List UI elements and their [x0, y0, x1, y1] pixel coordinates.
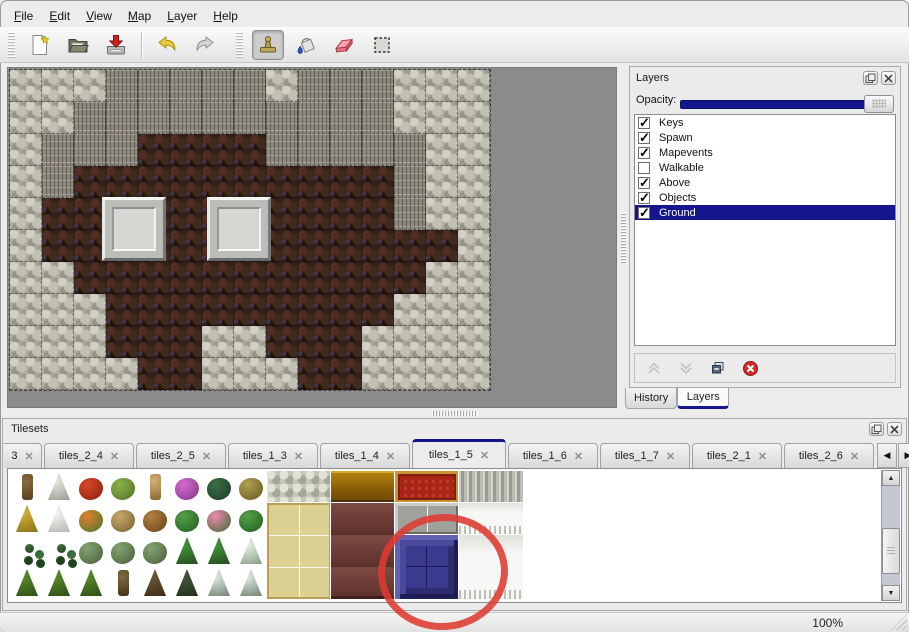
map-tile-light-rock[interactable] [458, 102, 490, 134]
specks-icon [25, 544, 34, 553]
map-tile-cliff[interactable] [394, 166, 426, 198]
map-tile-cave-floor[interactable] [362, 166, 394, 198]
palette-tile-stump[interactable] [107, 471, 139, 503]
map-tile-cave-floor[interactable] [106, 166, 138, 198]
map-tile-cave-floor[interactable] [298, 230, 330, 262]
tab-close-icon[interactable]: ✕ [850, 450, 859, 463]
palette-tile-dryplant[interactable] [235, 471, 267, 503]
map-tile-cave-floor[interactable] [266, 294, 298, 326]
palette-tile-whitecurtain[interactable] [459, 535, 523, 599]
map-tile-cave-floor[interactable] [394, 262, 426, 294]
map-tile-light-rock[interactable] [10, 326, 42, 358]
map-tile-cave-floor[interactable] [74, 166, 106, 198]
tileset-tab-tiles_1_5[interactable]: tiles_1_5✕ [412, 439, 506, 468]
palette-tile-whitecurtain[interactable] [459, 503, 523, 535]
chevron-down-icon [678, 360, 694, 376]
delete-layer-button[interactable] [737, 356, 763, 380]
palette-tile-orangeflower[interactable] [75, 503, 107, 535]
tileset-tab-tiles_2_1[interactable]: tiles_2_1✕ [692, 443, 782, 468]
arrow-down-icon: ▼ [888, 590, 895, 597]
palette-tile-specks[interactable] [11, 535, 43, 567]
palette-tile-conifer[interactable] [11, 567, 43, 599]
map-tile-light-rock[interactable] [362, 358, 394, 390]
map-tile-cliff[interactable] [330, 102, 362, 134]
undo-button[interactable] [151, 30, 183, 60]
layer-row-above[interactable]: ✓Above [635, 175, 895, 190]
map-tile-light-rock[interactable] [426, 102, 458, 134]
map-tile-cave-floor[interactable] [138, 134, 170, 166]
tilesets-panel-title: Tilesets [11, 423, 49, 435]
map-tile-light-rock[interactable] [106, 358, 138, 390]
map-tile-cave-floor[interactable] [234, 262, 266, 294]
palette-tile-wood[interactable] [331, 471, 395, 503]
palette-tile-snowpine[interactable] [203, 567, 235, 599]
map-tile-light-rock[interactable] [10, 166, 42, 198]
map-tile-cliff[interactable] [394, 198, 426, 230]
tab-close-icon[interactable]: ✕ [294, 450, 303, 463]
map-tile-cave-floor[interactable] [298, 166, 330, 198]
map-tile-light-rock[interactable] [42, 358, 74, 390]
redo-icon [193, 33, 217, 57]
map-tile-cave-floor[interactable] [138, 358, 170, 390]
palette-tile-silvercurtain[interactable] [459, 471, 523, 503]
map-tile-light-rock[interactable] [202, 358, 234, 390]
map-tile-cave-floor[interactable] [330, 326, 362, 358]
layer-name: Ground [659, 207, 696, 219]
map-tile-cave-floor[interactable] [170, 358, 202, 390]
tab-history[interactable]: History [625, 388, 677, 409]
map-tile-cave-floor[interactable] [170, 166, 202, 198]
map-tile-light-rock[interactable] [74, 294, 106, 326]
map-tile-cave-floor[interactable] [106, 294, 138, 326]
map-tile-cave-floor[interactable] [330, 166, 362, 198]
map-tile-cave-floor[interactable] [202, 294, 234, 326]
toolbar-handle-2[interactable] [236, 32, 243, 58]
scroll-tabs-right-button[interactable]: ▶ [898, 443, 909, 468]
map-tile-cliff[interactable] [202, 70, 234, 102]
map-tile-cave-floor[interactable] [170, 230, 202, 262]
menu-view[interactable]: View [80, 7, 122, 25]
map-tile-light-rock[interactable] [42, 70, 74, 102]
save-file-button[interactable] [100, 30, 132, 60]
map-tile-light-rock[interactable] [266, 70, 298, 102]
tab-label: tiles_2_6 [799, 450, 843, 462]
snowmound-icon [47, 505, 71, 532]
palette-tile-grayblocks[interactable] [395, 503, 459, 535]
map-tile-light-rock[interactable] [426, 294, 458, 326]
map-tile-light-rock[interactable] [202, 326, 234, 358]
map-tile-light-rock[interactable] [42, 102, 74, 134]
menu-file[interactable]: File [8, 7, 43, 25]
map-tile-light-rock[interactable] [42, 262, 74, 294]
map-tile-cave-floor[interactable] [106, 326, 138, 358]
new-file-button[interactable] [24, 30, 56, 60]
tileset-tab-tiles_2_6[interactable]: tiles_2_6✕ [784, 443, 874, 468]
layer-row-objects[interactable]: ✓Objects [635, 190, 895, 205]
layer-name: Objects [659, 192, 696, 204]
map-tile-light-rock[interactable] [458, 294, 490, 326]
close-panel-button[interactable] [887, 422, 902, 436]
palette-tile-bluebutton[interactable] [395, 535, 459, 599]
map-tile-cave-floor[interactable] [234, 166, 266, 198]
palette-tile-maroon[interactable] [331, 503, 395, 599]
palette-tile-palm[interactable] [171, 535, 203, 567]
layer-buttons [634, 353, 896, 383]
map-tile-cave-floor[interactable] [298, 262, 330, 294]
palette-tile-whitetree[interactable] [43, 471, 75, 503]
horizontal-splitter[interactable] [0, 409, 909, 417]
redflower-icon [79, 478, 103, 500]
palette-tile-stone[interactable] [267, 471, 331, 503]
scrollbar-thumb[interactable] [882, 528, 900, 574]
layer-row-spawn[interactable]: ✓Spawn [635, 130, 895, 145]
map-tile-light-rock[interactable] [458, 70, 490, 102]
map-tile-light-rock[interactable] [458, 326, 490, 358]
map-tile-light-rock[interactable] [426, 166, 458, 198]
tab-close-icon[interactable]: ✕ [758, 450, 767, 463]
tab-layers[interactable]: Layers [677, 388, 729, 409]
map-tile-light-rock[interactable] [458, 198, 490, 230]
map-tile-light-rock[interactable] [394, 70, 426, 102]
menu-layer[interactable]: Layer [161, 7, 207, 25]
map-tile-cave-floor[interactable] [298, 198, 330, 230]
map-tile-cave-floor[interactable] [202, 166, 234, 198]
tileset-tab-tiles_2_5[interactable]: tiles_2_5✕ [136, 443, 226, 468]
map-tile-cave-floor[interactable] [362, 198, 394, 230]
tab-label: tiles_1_4 [335, 450, 379, 462]
opacity-label: Opacity: [636, 94, 676, 106]
delete-icon [742, 360, 759, 377]
map-tile-cliff[interactable] [394, 134, 426, 166]
map-tile-cave-floor[interactable] [42, 198, 74, 230]
status-bar: 100% [0, 612, 909, 632]
toolbar-separator [141, 32, 142, 58]
map-tile-light-rock[interactable] [426, 198, 458, 230]
map-tile-cave-floor[interactable] [170, 294, 202, 326]
layer-list: ✓Keys✓Spawn✓MapeventsWalkable✓Above✓Obje… [634, 114, 896, 346]
palette-tile-bush[interactable] [75, 535, 107, 567]
map-tile-cliff[interactable] [74, 102, 106, 134]
layer-name: Spawn [659, 132, 693, 144]
map-tile-cave-floor[interactable] [202, 134, 234, 166]
map-tile-cave-floor[interactable] [330, 294, 362, 326]
snowpine-icon [239, 569, 263, 596]
map-tile-cave-floor[interactable] [298, 358, 330, 390]
map-viewport[interactable] [9, 69, 491, 391]
float-panel-button[interactable] [863, 71, 878, 85]
map-tile-cliff[interactable] [234, 70, 266, 102]
move-layer-up-button[interactable] [641, 356, 667, 380]
tileset-palette[interactable]: ▲ ▼ [7, 468, 902, 603]
float-panel-button[interactable] [869, 422, 884, 436]
palette-tile-drygrass[interactable] [107, 503, 139, 535]
map-tile-light-rock[interactable] [10, 294, 42, 326]
map-tile-light-rock[interactable] [458, 134, 490, 166]
map-tile-light-rock[interactable] [394, 326, 426, 358]
layer-visibility-checkbox[interactable]: ✓ [638, 147, 650, 159]
map-tile-light-rock[interactable] [426, 70, 458, 102]
scroll-up-button[interactable]: ▲ [882, 470, 900, 486]
map-tile-cliff[interactable] [298, 102, 330, 134]
map-tile-light-rock[interactable] [234, 358, 266, 390]
scroll-tabs-left-button[interactable]: ◀ [877, 443, 897, 468]
select-tool-button[interactable] [366, 30, 398, 60]
map-tile-cave-floor[interactable] [298, 326, 330, 358]
layer-visibility-checkbox[interactable]: ✓ [638, 117, 650, 129]
lily-icon [175, 510, 199, 532]
vertical-splitter[interactable] [618, 67, 629, 408]
map-tile-light-rock[interactable] [394, 358, 426, 390]
tab-label: 3 [11, 450, 17, 462]
map-tile-cave-floor[interactable] [362, 262, 394, 294]
map-tile-light-rock[interactable] [10, 358, 42, 390]
eraser-tool-button[interactable] [328, 30, 360, 60]
map-tile-light-rock[interactable] [10, 102, 42, 134]
bush-icon [143, 542, 167, 564]
tileset-tab-tiles_1_3[interactable]: tiles_1_3✕ [228, 443, 318, 468]
map-tile-cliff[interactable] [42, 166, 74, 198]
resize-grip-icon[interactable] [891, 614, 907, 630]
palette-tile-conifer[interactable] [43, 567, 75, 599]
palette-tile-lily[interactable] [235, 503, 267, 535]
tab-close-icon[interactable]: ✕ [386, 450, 395, 463]
map-tile-cave-floor[interactable] [330, 230, 362, 262]
map-tile-light-rock[interactable] [10, 70, 42, 102]
palette-tile-darktree[interactable] [171, 567, 203, 599]
map-tile-light-rock[interactable] [234, 326, 266, 358]
map-tile-cliff[interactable] [170, 102, 202, 134]
palette-tile-twist[interactable] [107, 567, 139, 599]
map-tile-cave-floor[interactable] [426, 230, 458, 262]
map-tile-light-rock[interactable] [42, 294, 74, 326]
map-tile-cave-floor[interactable] [138, 326, 170, 358]
map-tile-cliff[interactable] [266, 102, 298, 134]
palette-tile-hay[interactable] [11, 503, 43, 535]
duplicate-layer-button[interactable] [705, 356, 731, 380]
map-tile-cliff[interactable] [106, 102, 138, 134]
map-tile-light-rock[interactable] [394, 102, 426, 134]
map-tile-cliff[interactable] [42, 134, 74, 166]
layer-name: Walkable [659, 162, 704, 174]
map-tile-cliff[interactable] [362, 102, 394, 134]
map-tile-cave-floor[interactable] [330, 198, 362, 230]
map-tile-light-rock[interactable] [74, 358, 106, 390]
map-tile-light-rock[interactable] [426, 326, 458, 358]
palette-tile-snowmound[interactable] [43, 503, 75, 535]
map-tile-cave-floor[interactable] [266, 166, 298, 198]
map-object-panel[interactable] [102, 197, 166, 261]
map-tile-light-rock[interactable] [458, 358, 490, 390]
toolbar [0, 27, 909, 63]
tileset-tab-tiles_2_4[interactable]: tiles_2_4✕ [44, 443, 134, 468]
tileset-tab-tiles_1_4[interactable]: tiles_1_4✕ [320, 443, 410, 468]
map-tile-cave-floor[interactable] [330, 262, 362, 294]
tab-close-icon[interactable]: ✕ [24, 450, 33, 463]
palette-tile-trunk[interactable] [11, 471, 43, 503]
tab-close-icon[interactable]: ✕ [666, 450, 675, 463]
map-tile-cliff[interactable] [170, 70, 202, 102]
palm-icon [207, 537, 231, 564]
map-tile-light-rock[interactable] [266, 358, 298, 390]
map-tile-cliff[interactable] [202, 102, 234, 134]
palette-tile-redflower[interactable] [75, 471, 107, 503]
map-tile-light-rock[interactable] [426, 358, 458, 390]
layer-row-ground[interactable]: ✓Ground [635, 205, 895, 220]
palette-tile-fern[interactable] [203, 471, 235, 503]
map-tile-cliff[interactable] [106, 134, 138, 166]
map-tile-cliff[interactable] [266, 134, 298, 166]
layer-visibility-checkbox[interactable]: ✓ [638, 207, 650, 219]
tileset-tab-3[interactable]: 3✕ [4, 443, 42, 468]
layer-row-keys[interactable]: ✓Keys [635, 115, 895, 130]
stamp-tool-button[interactable] [252, 30, 284, 60]
stump-icon [111, 478, 135, 500]
map-tile-light-rock[interactable] [74, 326, 106, 358]
palette-tile-palm[interactable] [203, 535, 235, 567]
map-tile-cliff[interactable] [234, 102, 266, 134]
palette-tile-tanmat[interactable] [267, 503, 331, 599]
map-tile-cave-floor[interactable] [170, 262, 202, 294]
opacity-slider-handle[interactable] [864, 95, 894, 113]
close-panel-button[interactable] [881, 71, 896, 85]
toolbar-handle[interactable] [8, 32, 15, 58]
map-tile-cave-floor[interactable] [138, 166, 170, 198]
map-tile-light-rock[interactable] [42, 326, 74, 358]
palette-scrollbar[interactable]: ▲ ▼ [881, 470, 900, 601]
map-tile-cave-floor[interactable] [42, 230, 74, 262]
map-tile-light-rock[interactable] [426, 262, 458, 294]
map-tile-cave-floor[interactable] [202, 262, 234, 294]
map-tile-light-rock[interactable] [458, 230, 490, 262]
palm-icon [175, 537, 199, 564]
layer-visibility-checkbox[interactable]: ✓ [638, 177, 650, 189]
map-tile-cave-floor[interactable] [170, 326, 202, 358]
map-tile-cave-floor[interactable] [170, 198, 202, 230]
fill-tool-button[interactable] [290, 30, 322, 60]
map-tile-cave-floor[interactable] [74, 262, 106, 294]
map-tile-cave-floor[interactable] [234, 294, 266, 326]
map-tile-cave-floor[interactable] [138, 262, 170, 294]
layers-panel-title: Layers [636, 72, 669, 84]
opacity-slider-track[interactable] [680, 100, 866, 109]
palette-tile-snowpine[interactable] [235, 567, 267, 599]
map-tile-light-rock[interactable] [394, 294, 426, 326]
tab-close-icon[interactable]: ✕ [480, 449, 489, 462]
map-tile-cliff[interactable] [362, 70, 394, 102]
panel-inset [112, 207, 156, 251]
map-tile-light-rock[interactable] [458, 166, 490, 198]
map-tile-cliff[interactable] [330, 70, 362, 102]
panel-inset [217, 207, 261, 251]
palette-tile-pinkflower[interactable] [203, 503, 235, 535]
palette-tile-leaves[interactable] [139, 503, 171, 535]
palette-tile-snowtree[interactable] [235, 535, 267, 567]
map-tile-light-rock[interactable] [10, 230, 42, 262]
palette-tile-conifer[interactable] [75, 567, 107, 599]
tantrunk-icon [150, 474, 161, 500]
open-file-button[interactable] [62, 30, 94, 60]
map-tile-cave-floor[interactable] [362, 230, 394, 262]
layer-row-walkable[interactable]: Walkable [635, 160, 895, 175]
layer-visibility-checkbox[interactable] [638, 162, 650, 174]
redo-button[interactable] [189, 30, 221, 60]
app-window: FileEditViewMapLayerHelp [0, 0, 909, 632]
palette-tile-bush[interactable] [139, 535, 171, 567]
map-tile-light-rock[interactable] [10, 134, 42, 166]
map-canvas[interactable] [7, 67, 617, 408]
purpleflower-icon [175, 478, 199, 500]
snowpine-icon [207, 569, 231, 596]
layer-visibility-checkbox[interactable]: ✓ [638, 192, 650, 204]
palette-tile-specks[interactable] [43, 535, 75, 567]
map-tile-light-rock[interactable] [74, 70, 106, 102]
map-tile-light-rock[interactable] [10, 198, 42, 230]
map-tile-cliff[interactable] [330, 134, 362, 166]
map-tile-cliff[interactable] [74, 134, 106, 166]
menu-edit[interactable]: Edit [43, 7, 80, 25]
leaves-icon [143, 510, 167, 532]
palette-tile-tantrunk[interactable] [139, 471, 171, 503]
tileset-tab-tiles_1_6[interactable]: tiles_1_6✕ [508, 443, 598, 468]
map-tile-light-rock[interactable] [362, 326, 394, 358]
tab-close-icon[interactable]: ✕ [110, 450, 119, 463]
palette-tile-deadtree[interactable] [139, 567, 171, 599]
map-tile-cliff[interactable] [138, 102, 170, 134]
map-tile-cliff[interactable] [362, 134, 394, 166]
map-tile-cave-floor[interactable] [266, 262, 298, 294]
map-tile-cave-floor[interactable] [266, 326, 298, 358]
palette-tile-carpet[interactable] [395, 471, 459, 503]
orangeflower-icon [79, 510, 103, 532]
map-tile-cave-floor[interactable] [138, 294, 170, 326]
layer-visibility-checkbox[interactable]: ✓ [638, 132, 650, 144]
palette-tile-bush[interactable] [107, 535, 139, 567]
layer-row-mapevents[interactable]: ✓Mapevents [635, 145, 895, 160]
zoom-level: 100% [812, 616, 843, 630]
map-tile-light-rock[interactable] [426, 134, 458, 166]
map-tile-cliff[interactable] [106, 70, 138, 102]
palette-tile-purpleflower[interactable] [171, 471, 203, 503]
tileset-tab-tiles_1_7[interactable]: tiles_1_7✕ [600, 443, 690, 468]
menu-help[interactable]: Help [207, 7, 248, 25]
map-tile-cave-floor[interactable] [106, 262, 138, 294]
map-tile-cave-floor[interactable] [362, 294, 394, 326]
map-tile-cliff[interactable] [298, 70, 330, 102]
map-tile-cliff[interactable] [138, 70, 170, 102]
fern-icon [207, 478, 231, 500]
open-file-icon [66, 33, 90, 57]
palette-tile-lily[interactable] [171, 503, 203, 535]
map-object-panel[interactable] [207, 197, 271, 261]
map-tile-cave-floor[interactable] [234, 134, 266, 166]
tab-close-icon[interactable]: ✕ [574, 450, 583, 463]
menu-map[interactable]: Map [122, 7, 161, 25]
tab-close-icon[interactable]: ✕ [202, 450, 211, 463]
layers-panel: Layers Opacity: ✓Keys✓Spawn✓MapeventsWal… [629, 66, 901, 388]
float-icon [871, 424, 882, 435]
map-tile-cave-floor[interactable] [394, 230, 426, 262]
scroll-down-button[interactable]: ▼ [882, 585, 900, 601]
tab-label: tiles_2_4 [59, 450, 103, 462]
map-tile-cave-floor[interactable] [170, 134, 202, 166]
map-tile-light-rock[interactable] [458, 262, 490, 294]
map-tile-light-rock[interactable] [10, 262, 42, 294]
move-layer-down-button[interactable] [673, 356, 699, 380]
map-tile-cave-floor[interactable] [298, 294, 330, 326]
bush-icon [79, 542, 103, 564]
map-tile-cliff[interactable] [298, 134, 330, 166]
map-tile-cave-floor[interactable] [330, 358, 362, 390]
